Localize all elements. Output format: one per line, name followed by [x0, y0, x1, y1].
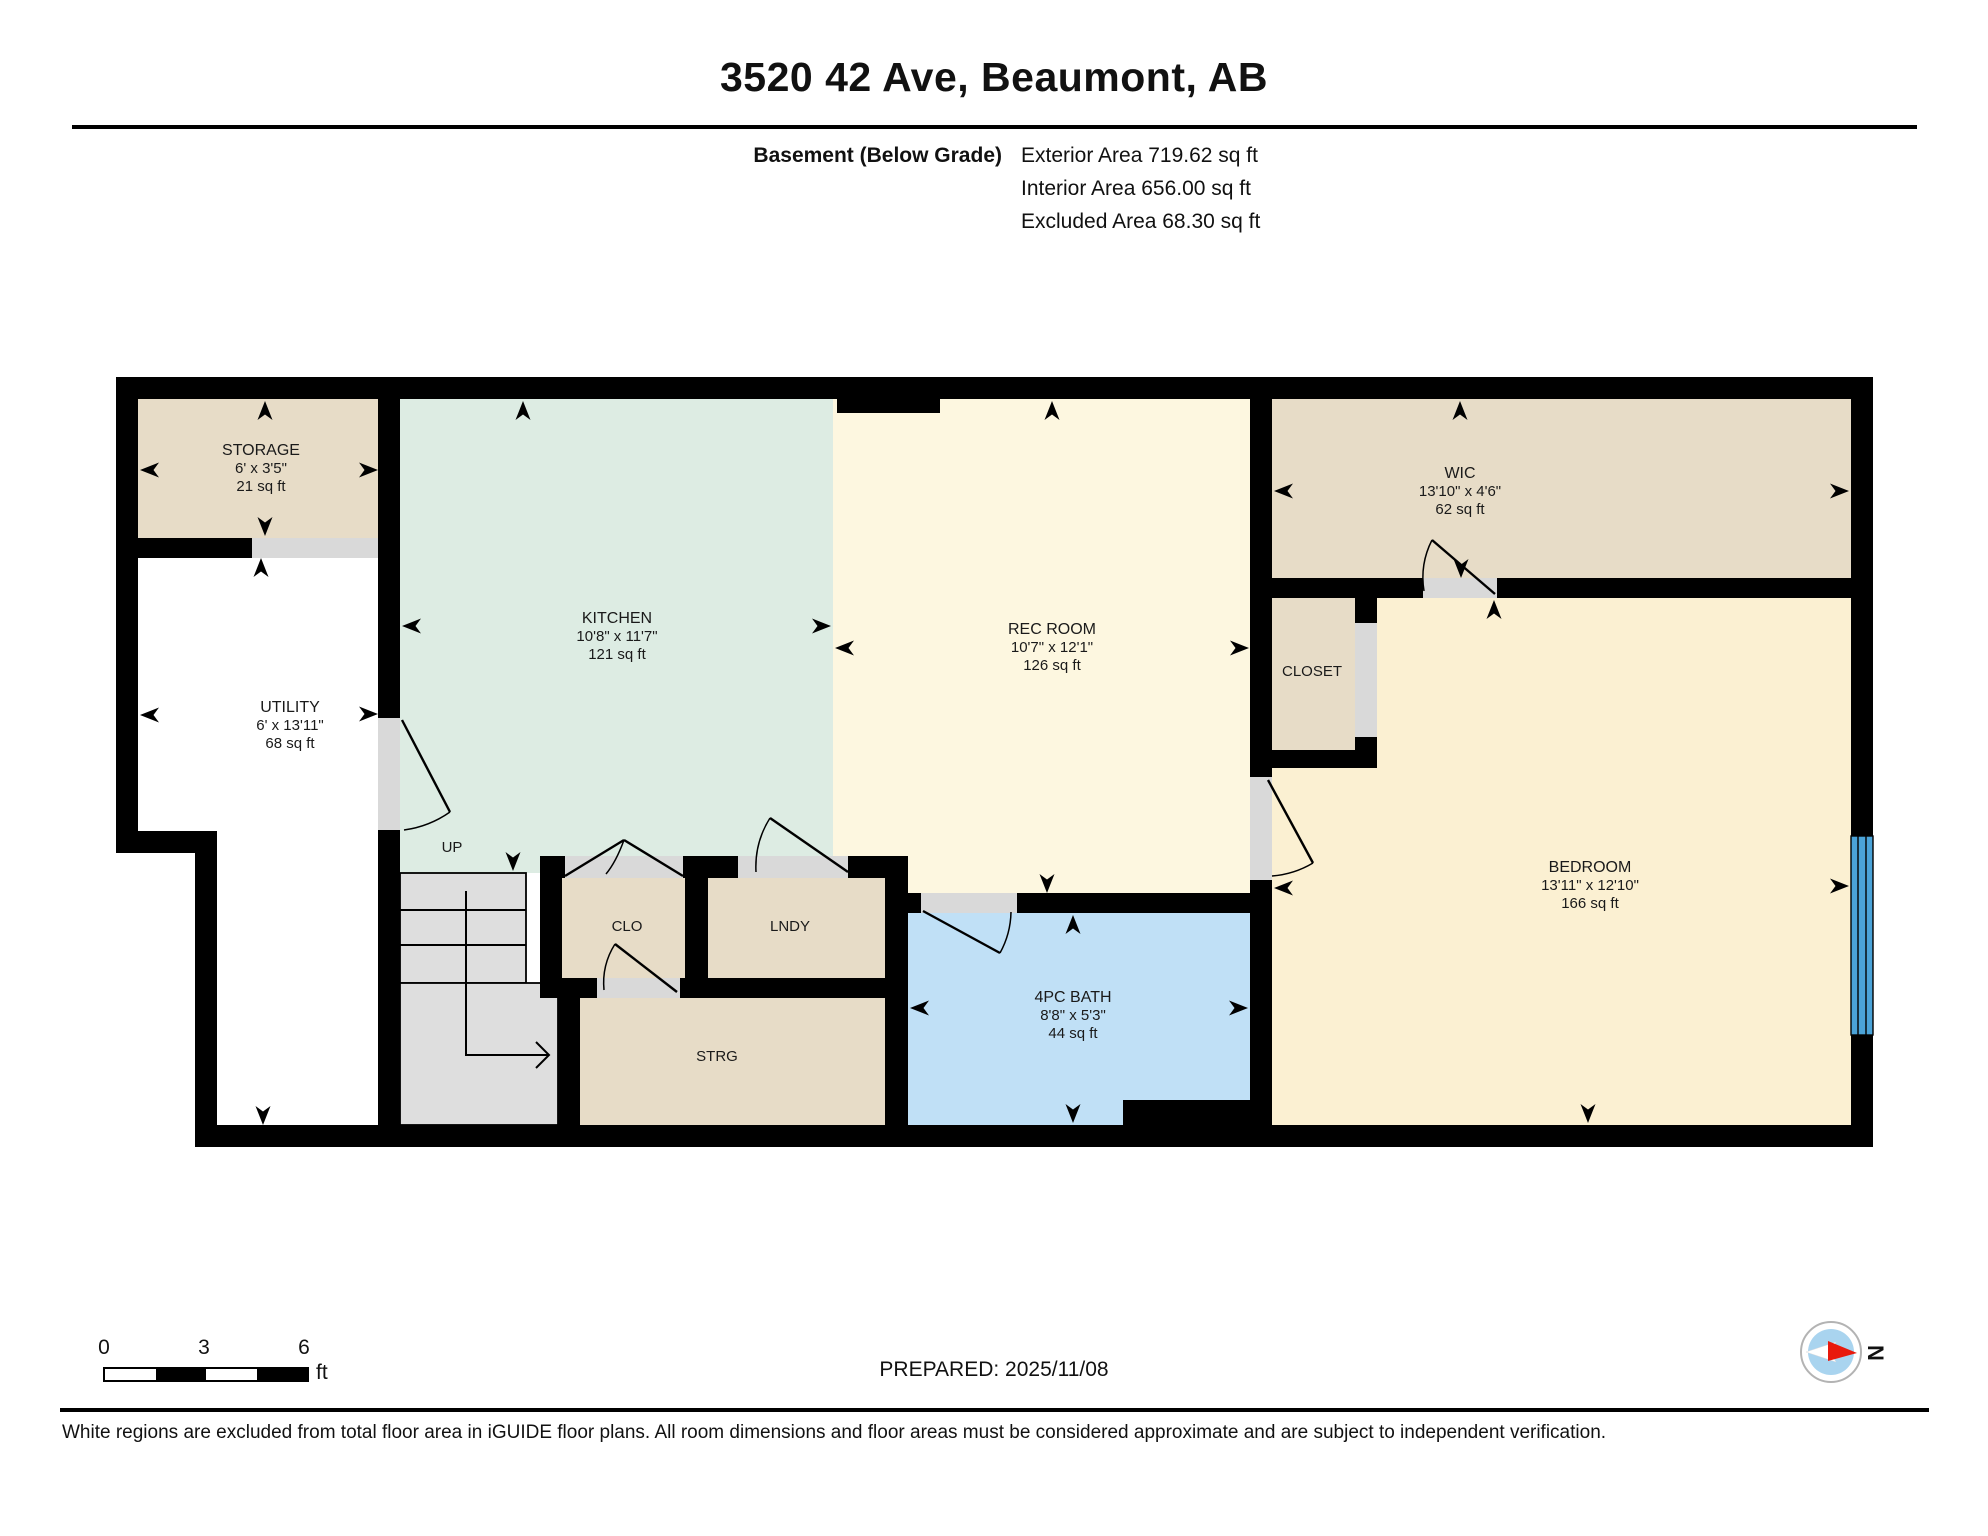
disclaimer-text: White regions are excluded from total fl… — [62, 1422, 1932, 1444]
prepared-date: PREPARED: 2025/11/08 — [0, 1358, 1988, 1382]
floorplan-page: 3520 42 Ave, Beaumont, AB Basement (Belo… — [0, 0, 1988, 1536]
room-label-strg: STRG — [696, 1048, 738, 1066]
room-label-bath: 4PC BATH 8'8" x 5'3" 44 sq ft — [1034, 989, 1111, 1043]
stairs — [400, 873, 558, 1125]
scale-tick-6: 6 — [298, 1336, 310, 1360]
room-label-closet: CLOSET — [1282, 663, 1342, 681]
room-label-kitchen: KITCHEN 10'8" x 11'7" 121 sq ft — [576, 610, 657, 664]
compass-north-label: N — [1862, 1340, 1888, 1366]
room-label-utility: UTILITY 6' x 13'11" 68 sq ft — [256, 699, 324, 753]
scale-tick-3: 3 — [198, 1336, 210, 1360]
scale-tick-0: 0 — [98, 1336, 110, 1360]
floor-plan-svg — [0, 0, 1988, 1536]
window — [1851, 836, 1873, 1035]
stairs-up-label: UP — [442, 839, 463, 857]
room-label-rec-room: REC ROOM 10'7" x 12'1" 126 sq ft — [1008, 621, 1096, 675]
room-label-lndy: LNDY — [770, 918, 810, 936]
room-label-storage: STORAGE 6' x 3'5" 21 sq ft — [222, 442, 300, 496]
room-label-bedroom: BEDROOM 13'11" x 12'10" 166 sq ft — [1541, 859, 1639, 913]
room-label-wic: WIC 13'10" x 4'6" 62 sq ft — [1419, 465, 1501, 519]
footer-rule — [60, 1408, 1929, 1412]
room-label-clo: CLO — [612, 918, 643, 936]
